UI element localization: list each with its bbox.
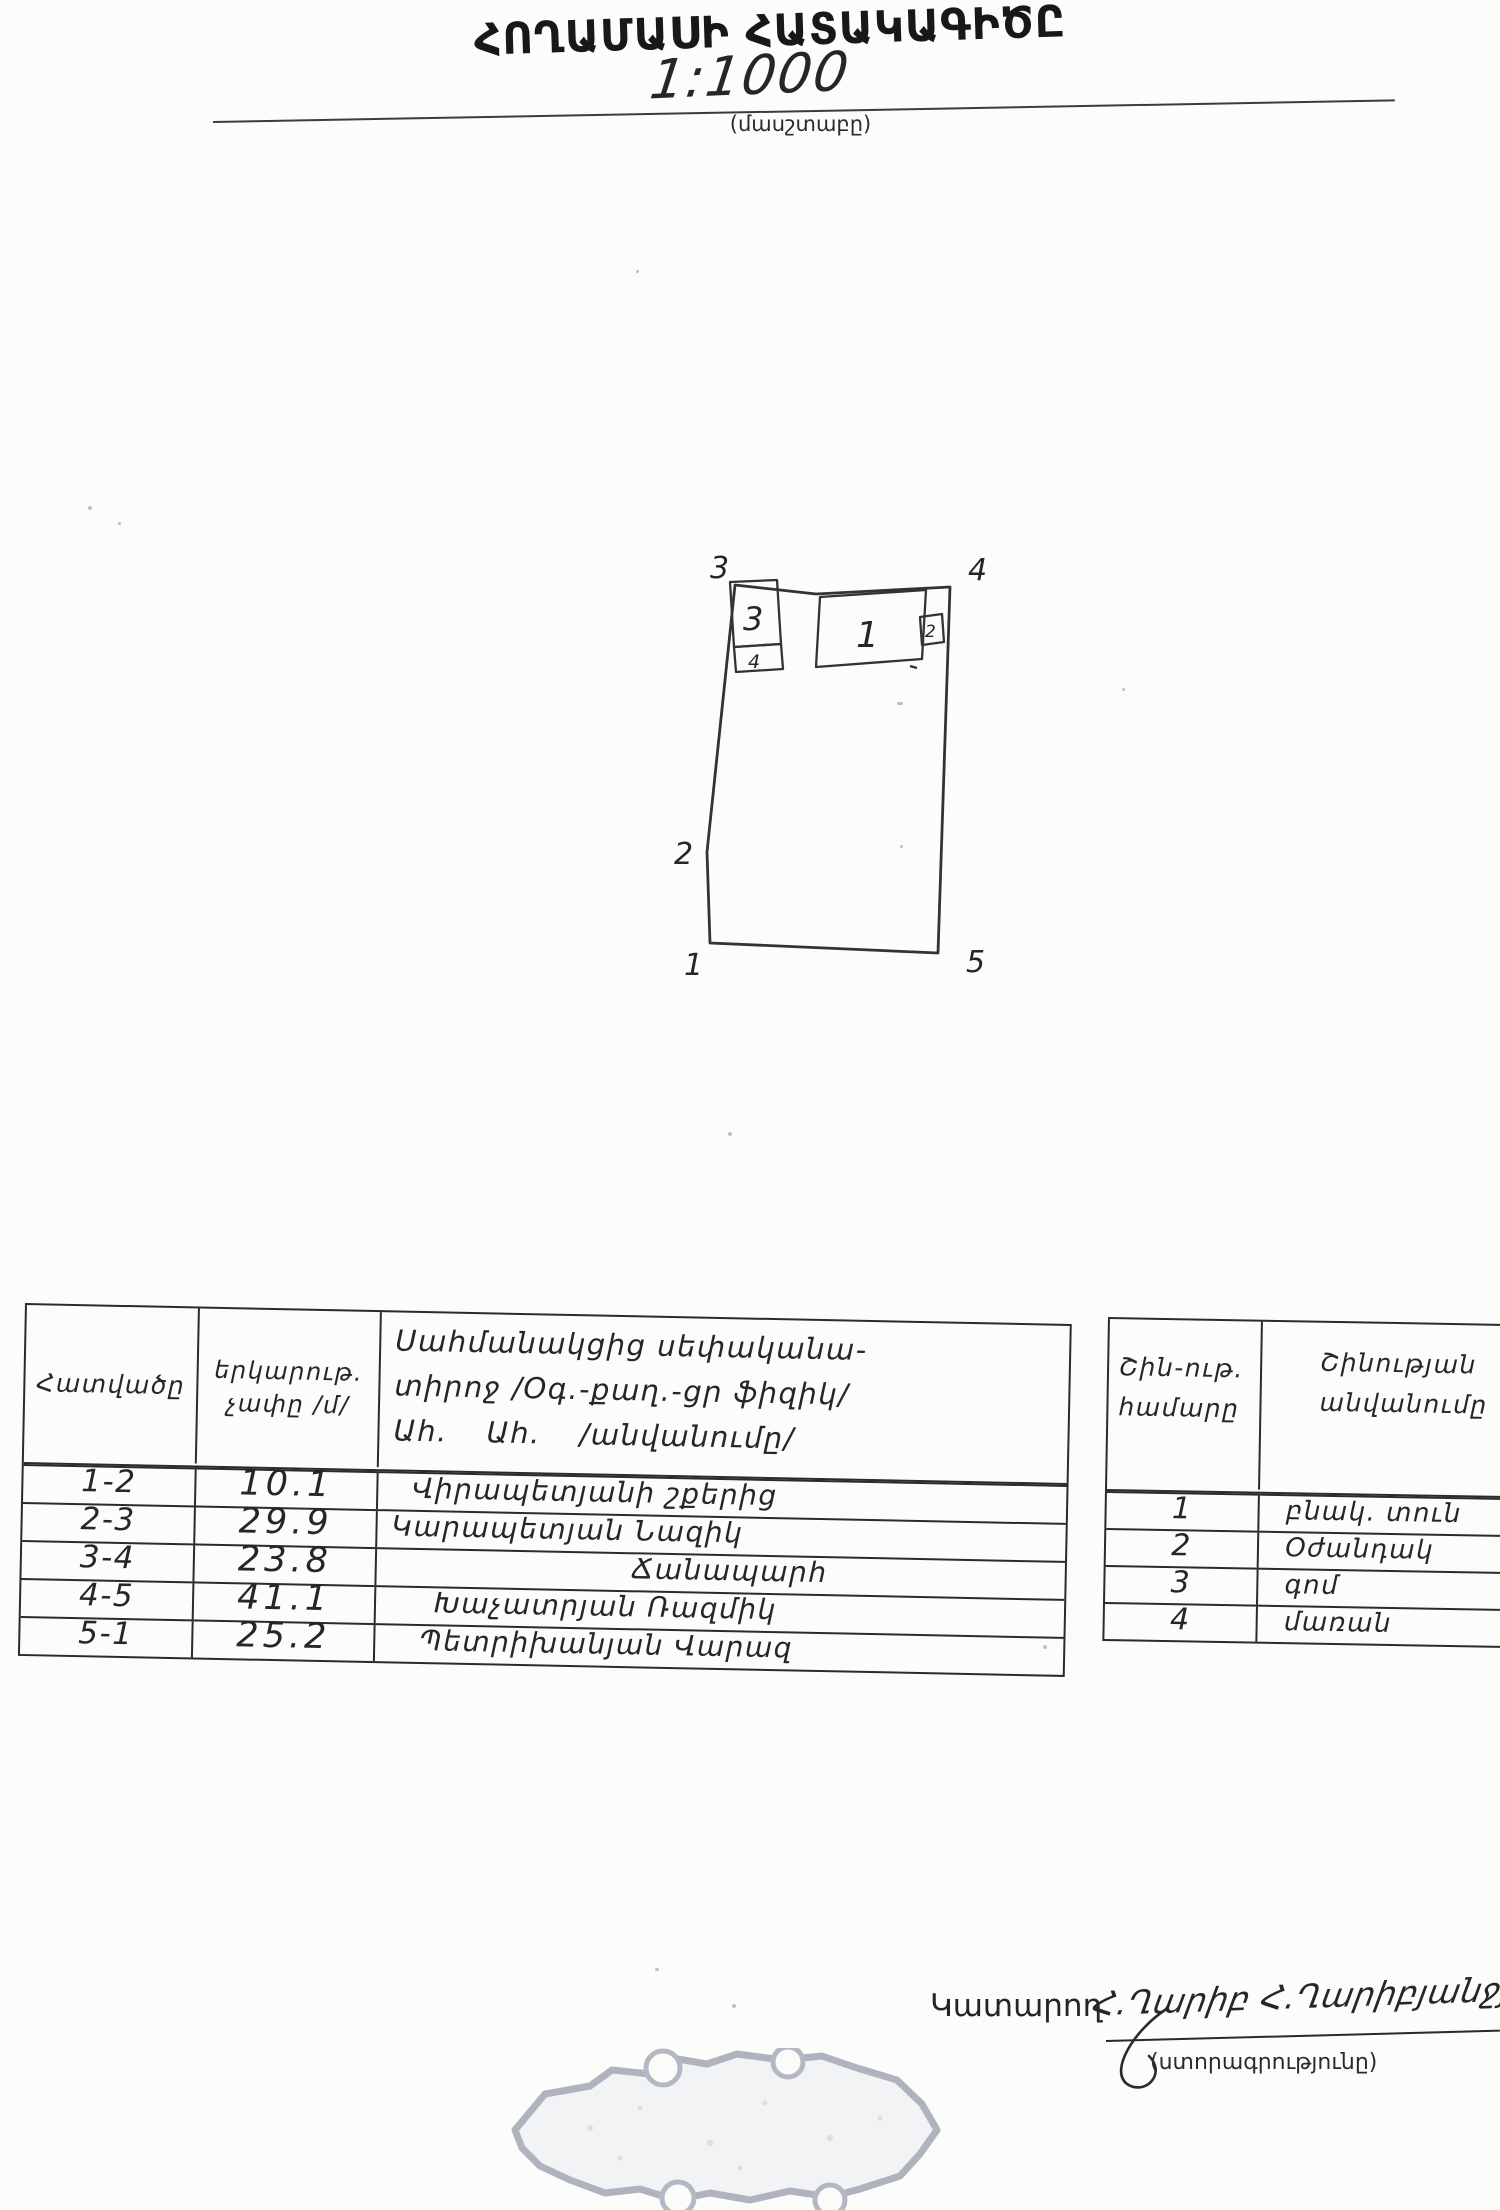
scan-speck [655,1968,659,1971]
segment-neighbor: Կարապետյան Նազիկ [391,1509,743,1549]
scan-speck [732,2004,736,2008]
buildings-table-header: Շին-ութ. համարը Շինության անվանումը [1107,1319,1500,1494]
building-number: 4 [1170,1602,1191,1637]
executor-label: Կատարող [930,1988,1102,2024]
segment-neighbor: Վիրապետյանի շքերից [412,1471,778,1511]
scan-speck [897,702,903,705]
building-number: 2 [1171,1528,1192,1563]
corner-label-3: 3 [710,551,729,586]
building-label-4: 4 [748,651,760,673]
scan-speck [636,270,639,273]
building-row: 4 մառան [1104,1602,1500,1646]
building-label-2: 2 [925,622,936,642]
segment-length: 41.1 [237,1577,332,1619]
scale-caption: (մասշտաբը) [688,112,913,136]
scan-speck [1043,1645,1047,1649]
plot-diagram: 3 4 2 1 5 3 4 1 2 [630,520,1050,990]
building-label-3: 3 [743,600,763,638]
segment-length: 23.8 [238,1539,333,1581]
building-name: բնակ. տուն [1260,1495,1462,1529]
scan-speck [1122,688,1125,691]
segment-neighbor: Խաչատրյան Ռազմիկ [434,1586,777,1626]
header-building-number: Շին-ութ. համարը [1118,1347,1244,1429]
buildings-table: Շին-ութ. համարը Շինության անվանումը 1 բն… [1102,1317,1500,1648]
segment-length: 29.9 [238,1501,333,1543]
segment-id: 3-4 [79,1539,135,1576]
building-name: մառան [1258,1606,1392,1638]
segments-table: Հատվածը երկարութ. չափը /մ/ Սահմանակցից ս… [18,1303,1072,1677]
segment-id: 2-3 [80,1501,136,1538]
header-length: երկարութ. չափը /մ/ [213,1354,363,1422]
scan-speck [728,1132,732,1136]
segment-id: 4-5 [79,1577,135,1614]
building-number: 3 [1170,1565,1191,1600]
segment-neighbor: Պետրիխանյան Վարազ [419,1623,793,1663]
building-name: Օժանդակ [1259,1532,1434,1565]
segment-id: 1-2 [81,1463,137,1500]
tick-mark [910,666,917,668]
plot-boundary [707,585,950,953]
scan-speck [900,845,903,848]
segment-length: 10.1 [239,1463,334,1505]
corner-label-5: 5 [966,945,985,980]
segment-neighbor: Ճանապարհ [631,1552,827,1589]
segments-table-header: Հատվածը երկարութ. չափը /մ/ Սահմանակցից ս… [24,1305,1070,1481]
header-segment: Հատվածը [36,1368,185,1400]
segment-id: 5-1 [78,1615,134,1652]
building-label-1: 1 [856,615,879,656]
scanned-land-plan-page: ՀՈՂԱՄԱՍԻ ՀԱՏԱԿԱԳԻԾԸ 1:1000 (մասշտաբը) 3 … [0,0,1500,2210]
segment-length: 25.2 [236,1615,331,1657]
corner-label-1: 1 [684,948,703,983]
corner-label-2: 2 [674,837,693,872]
header-building-name: Շինության անվանումը [1319,1343,1489,1426]
scan-speck [88,506,92,510]
header-neighbor: Սահմանակցից սեփականա- տիրոջ /Օգ.-քաղ.-ցր… [393,1318,868,1462]
signature-caption: (ստորագրությունը) [1150,2050,1377,2075]
building-number: 1 [1172,1491,1193,1526]
scan-speck [118,522,121,525]
stamp-seal-icon [500,2048,970,2210]
corner-label-4: 4 [968,553,987,588]
building-name: գոմ [1258,1569,1339,1600]
